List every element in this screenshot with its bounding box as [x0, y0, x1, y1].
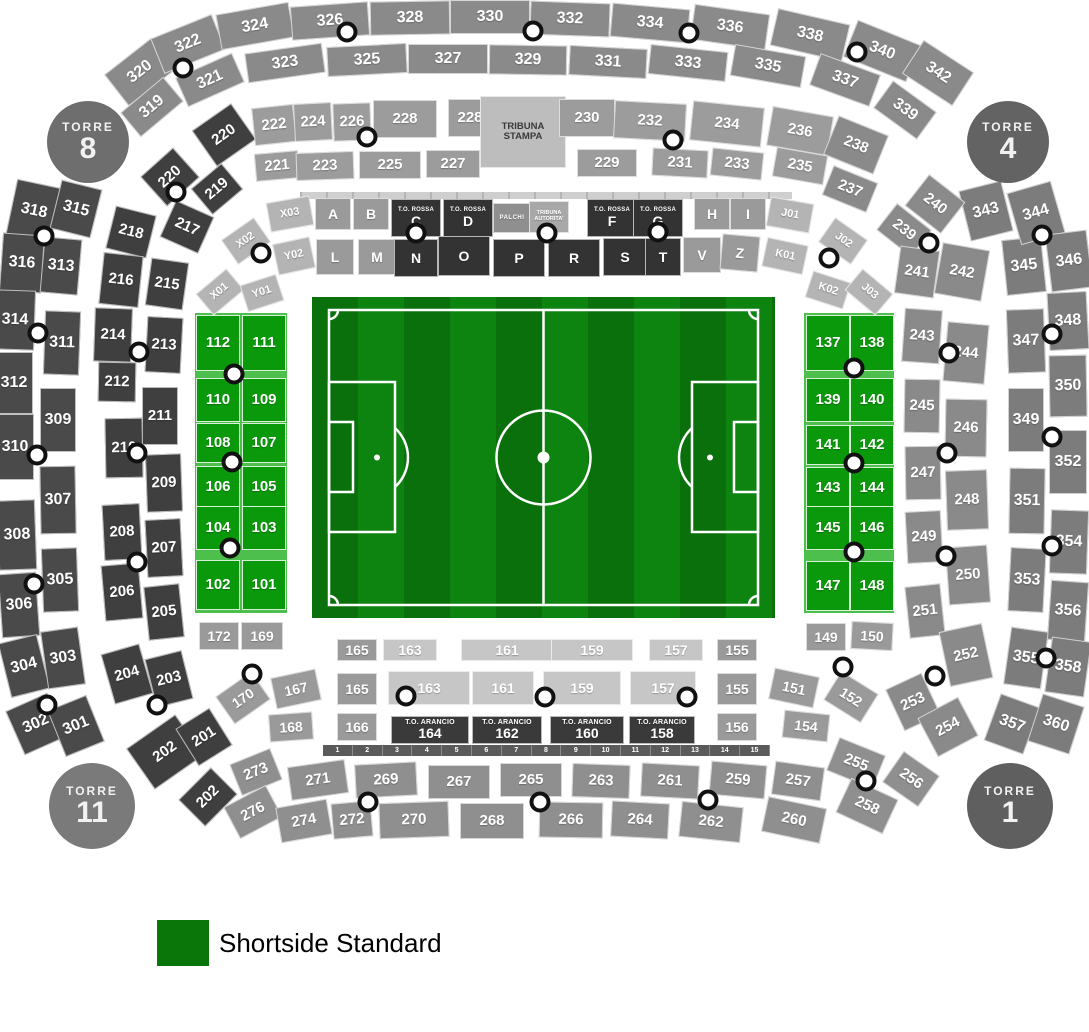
section-label: 214 [100, 327, 126, 344]
section-label: 107 [251, 435, 276, 451]
section-label: 157 [651, 681, 674, 696]
section-label: 205 [151, 603, 178, 621]
section-label: TRIBUNA AUTORITA' [534, 211, 563, 223]
section-label: 163 [417, 681, 440, 696]
section-350: 350 [1048, 355, 1087, 418]
section-label: 238 [841, 133, 870, 157]
section-172: 172 [199, 622, 239, 650]
section-label: 223 [312, 158, 338, 175]
section-label: 265 [518, 772, 543, 788]
section-252: 252 [939, 623, 994, 687]
row-number: 9 [561, 745, 591, 756]
gate-marker [27, 445, 48, 466]
section-label: 340 [866, 38, 897, 64]
section-label: 138 [859, 335, 884, 351]
section-label: 234 [714, 115, 741, 133]
section-label: 345 [1010, 256, 1038, 275]
section-j03: J03 [845, 268, 894, 315]
section-label: X01 [209, 281, 231, 302]
section-305: 305 [41, 547, 79, 612]
section-label: 260 [780, 810, 808, 831]
section-label: 272 [339, 811, 365, 829]
torre-4: TORRE4 [967, 101, 1049, 183]
section-149: 149 [806, 623, 846, 651]
section-160: T.O. ARANCIO160 [550, 716, 624, 744]
section-label: 220 [209, 121, 239, 148]
section-label: 224 [300, 113, 326, 130]
section-label: 239 [889, 216, 918, 244]
section-label: 305 [46, 571, 73, 589]
section-324: 324 [215, 2, 294, 50]
section-233: 233 [710, 147, 765, 180]
section-336: 336 [690, 4, 770, 50]
section-213: 213 [145, 316, 184, 374]
section-label: 245 [909, 398, 934, 414]
section-label: 343 [971, 200, 1001, 223]
row-number: 3 [383, 745, 413, 756]
section-label: 269 [373, 771, 399, 788]
section-label: 103 [251, 520, 276, 536]
gate-marker [530, 792, 551, 813]
gate-marker [37, 695, 58, 716]
gate-marker [129, 342, 150, 363]
section-label: 161 [491, 681, 514, 696]
section-314: 314 [0, 289, 36, 350]
section-j01: J01 [766, 196, 815, 233]
section-label: 243 [909, 327, 935, 344]
section-label: 307 [44, 491, 71, 508]
section-label: 106 [205, 479, 230, 495]
section-label: D [463, 214, 473, 229]
section-label: 228 [392, 111, 417, 127]
section-label: 337 [830, 68, 861, 93]
section-207: 207 [145, 518, 184, 578]
section-155a: 155 [717, 639, 757, 661]
section-label: 329 [514, 51, 541, 68]
section-label: 159 [570, 681, 593, 696]
section-label: R [569, 251, 579, 266]
section-158: T.O. ARANCIO158 [629, 716, 695, 744]
section-351: 351 [1008, 468, 1045, 535]
section-label: I [746, 207, 750, 222]
torre-8: TORRE8 [47, 101, 129, 183]
section-label: 227 [440, 156, 465, 172]
section-label: 236 [786, 121, 813, 141]
gate-marker [220, 538, 241, 559]
section-205: 205 [143, 583, 184, 640]
section-label: 202 [150, 738, 180, 765]
section-y02: Y02 [272, 236, 316, 275]
section-143[interactable]: 143 [806, 467, 850, 509]
section-label: 213 [151, 336, 177, 353]
section-label: 141 [815, 437, 840, 453]
section-label: 216 [108, 271, 135, 289]
section-268: 268 [460, 803, 524, 839]
gate-marker [833, 657, 854, 678]
section-label: 252 [952, 645, 980, 666]
gate-marker [337, 22, 358, 43]
section-label: 217 [172, 215, 201, 240]
section-palchi: PALCHI [493, 203, 531, 233]
section-label: 151 [781, 678, 807, 697]
section-label: 316 [8, 254, 36, 273]
section-label: 215 [154, 274, 181, 293]
gate-marker [523, 21, 544, 42]
section-242: 242 [934, 242, 990, 302]
section-label: 144 [859, 480, 884, 496]
gate-marker [939, 343, 960, 364]
section-243: 243 [901, 308, 943, 365]
legend: Shortside Standard [157, 920, 442, 966]
row-number: 5 [442, 745, 472, 756]
section-260: 260 [761, 796, 827, 844]
section-label: 202 [194, 783, 223, 812]
section-label: 207 [151, 539, 177, 556]
section-139[interactable]: 139 [806, 378, 850, 422]
section-103[interactable]: 103 [242, 506, 286, 550]
section-label: P [514, 251, 523, 266]
section-label: 342 [922, 59, 954, 88]
section-label: 301 [60, 713, 91, 739]
section-label: 339 [889, 95, 920, 124]
section-label: 336 [716, 17, 745, 37]
section-353: 353 [1007, 547, 1046, 613]
section-label: 152 [837, 685, 865, 710]
gate-marker [856, 771, 877, 792]
torre-number: 1 [1002, 798, 1019, 828]
section-label: J01 [780, 208, 800, 223]
section-label: 203 [155, 668, 183, 689]
section-303: 303 [40, 627, 86, 690]
section-label: 140 [859, 392, 884, 408]
section-347: 347 [1006, 308, 1046, 373]
section-333: 333 [648, 44, 729, 82]
section-166: 166 [337, 713, 377, 741]
section-label: 109 [251, 392, 276, 408]
section-label: 344 [1021, 201, 1051, 225]
section-label: 112 [206, 335, 230, 351]
section-323: 323 [244, 43, 325, 84]
section-label: 231 [667, 154, 693, 171]
section-147[interactable]: 147 [806, 561, 850, 611]
section-325: 325 [326, 43, 407, 77]
section-h: H [694, 198, 730, 230]
section-label: 350 [1054, 377, 1081, 394]
gate-marker [396, 686, 417, 707]
section-label: 312 [1, 375, 28, 392]
row-number-strip: 123456789101112131415 [323, 745, 770, 756]
section-label: 349 [1013, 412, 1040, 429]
section-109[interactable]: 109 [242, 378, 286, 422]
row-number: 2 [353, 745, 383, 756]
section-326: 326 [290, 1, 370, 40]
section-label: 170 [229, 685, 257, 710]
section-261: 261 [640, 763, 700, 800]
section-label: O [459, 249, 470, 264]
gate-marker [1032, 225, 1053, 246]
section-label: 248 [954, 492, 980, 509]
section-331: 331 [568, 45, 647, 79]
gate-marker [1042, 324, 1063, 345]
section-144[interactable]: 144 [850, 467, 894, 509]
gate-marker [847, 42, 868, 63]
section-label: 330 [477, 9, 504, 26]
section-219: 219 [191, 163, 243, 215]
section-label: 158 [650, 726, 673, 741]
section-211: 211 [142, 387, 178, 445]
gate-marker [24, 574, 45, 595]
gate-marker [1042, 427, 1063, 448]
section-162: T.O. ARANCIO162 [472, 716, 542, 744]
section-label: 313 [47, 256, 75, 275]
section-334: 334 [610, 3, 691, 44]
section-b: B [353, 198, 389, 230]
section-102[interactable]: 102 [196, 560, 240, 610]
section-label: 149 [814, 630, 837, 645]
section-107[interactable]: 107 [242, 423, 286, 463]
section-label: 228 [457, 110, 482, 126]
gate-marker [127, 552, 148, 573]
section-label: 169 [250, 629, 273, 644]
section-label: 139 [815, 392, 840, 408]
section-308: 308 [0, 499, 37, 570]
section-label: F [608, 214, 617, 229]
section-label: 209 [151, 475, 177, 492]
section-label: 172 [207, 629, 230, 644]
section-label: 147 [815, 578, 840, 594]
torre-number: 11 [76, 798, 108, 828]
stadium-seating-map: 3203223243263283303323343363383403423193… [0, 0, 1089, 1032]
section-label: 165 [345, 682, 368, 697]
section-label: 235 [786, 156, 813, 176]
section-148[interactable]: 148 [850, 561, 894, 611]
section-101[interactable]: 101 [242, 560, 286, 610]
section-343: 343 [958, 180, 1013, 241]
section-label: 328 [396, 9, 423, 26]
gate-marker [358, 792, 379, 813]
section-218: 218 [105, 206, 156, 259]
section-label: 314 [1, 311, 28, 329]
section-328: 328 [370, 0, 451, 35]
section-164: T.O. ARANCIO164 [391, 716, 469, 744]
section-label: 167 [283, 679, 309, 698]
section-214: 214 [93, 307, 133, 362]
section-161b: 161 [472, 671, 534, 705]
section-label: 160 [575, 726, 598, 741]
section-label: 263 [588, 773, 614, 790]
section-label: 274 [290, 811, 317, 831]
section-label: 241 [904, 262, 931, 281]
section-v: V [683, 237, 721, 273]
section-label: 346 [1055, 251, 1084, 271]
section-169: 169 [241, 622, 283, 650]
section-label: 338 [795, 24, 825, 46]
section-label: 219 [202, 175, 231, 203]
gate-marker [224, 364, 245, 385]
section-label: V [697, 248, 706, 263]
section-label: 321 [194, 67, 225, 93]
section-label: 143 [815, 480, 840, 496]
gate-marker [844, 453, 865, 474]
gate-marker [648, 222, 669, 243]
section-label: S [620, 250, 629, 265]
section-label: 230 [574, 110, 599, 126]
section-110[interactable]: 110 [196, 378, 240, 422]
section-tribuna-stampa: TRIBUNA STAMPA [480, 96, 566, 168]
gate-marker [127, 443, 148, 464]
row-number: 1 [323, 745, 353, 756]
section-label: 218 [117, 221, 145, 242]
section-label: 201 [189, 724, 219, 751]
section-label: 334 [636, 13, 664, 32]
section-label: 155 [725, 682, 748, 697]
section-227: 227 [426, 150, 480, 178]
section-label: 331 [594, 53, 622, 71]
gate-marker [222, 452, 243, 473]
gate-marker [535, 687, 556, 708]
section-label: 204 [113, 663, 141, 685]
section-251: 251 [904, 583, 945, 638]
section-label: 356 [1054, 602, 1082, 621]
section-311: 311 [43, 310, 81, 375]
section-label: 233 [724, 155, 751, 173]
section-label: 208 [109, 523, 135, 540]
section-152: 152 [823, 671, 878, 723]
section-159a: 159 [551, 639, 633, 661]
section-label: 104 [205, 520, 230, 536]
section-label: B [366, 207, 376, 222]
section-label: 168 [279, 719, 303, 735]
section-label: 306 [5, 596, 33, 615]
section-label: 111 [252, 335, 275, 351]
gate-marker [406, 223, 427, 244]
section-137[interactable]: 137 [806, 315, 850, 371]
section-label: 253 [898, 690, 927, 715]
section-234: 234 [689, 100, 765, 147]
section-140[interactable]: 140 [850, 378, 894, 422]
section-267: 267 [428, 765, 490, 799]
section-327: 327 [408, 44, 488, 74]
torre-number: 8 [80, 134, 97, 164]
gate-marker [844, 358, 865, 379]
row-number: 7 [502, 745, 532, 756]
section-label: 332 [556, 10, 583, 28]
section-231: 231 [651, 148, 708, 179]
section-label: 229 [594, 155, 619, 171]
section-label: 258 [852, 794, 881, 819]
section-222: 222 [251, 104, 297, 146]
section-t: T [645, 238, 681, 276]
section-label: 206 [109, 583, 135, 601]
section-248: 248 [945, 469, 989, 530]
section-label: 268 [479, 813, 504, 829]
section-label: 166 [345, 720, 368, 735]
center-spot [538, 452, 550, 464]
section-m: M [358, 239, 396, 275]
section-label: 225 [377, 157, 402, 173]
section-245: 245 [904, 379, 941, 434]
section-274: 274 [275, 799, 332, 843]
section-label: 145 [815, 520, 840, 536]
section-label: 102 [205, 577, 230, 593]
section-label: 353 [1013, 571, 1041, 589]
section-151: 151 [768, 668, 820, 709]
section-349: 349 [1008, 388, 1044, 452]
section-label: 164 [418, 726, 441, 741]
section-105[interactable]: 105 [242, 466, 286, 508]
section-209: 209 [145, 453, 183, 512]
section-label: J02 [832, 231, 854, 251]
section-154: 154 [782, 710, 831, 743]
section-label: 240 [920, 190, 949, 218]
row-number: 12 [651, 745, 681, 756]
section-label: M [371, 250, 383, 265]
section-label: Y01 [251, 284, 273, 301]
section-label: 249 [911, 528, 937, 545]
torre-11: TORRE11 [49, 763, 135, 849]
section-label: 303 [49, 648, 78, 668]
section-label: K01 [774, 248, 796, 263]
section-label: 304 [9, 655, 39, 678]
penalty-spot-right [707, 455, 713, 461]
section-label: 246 [953, 420, 978, 436]
section-label: 250 [955, 566, 981, 583]
row-number: 8 [532, 745, 562, 756]
section-360: 360 [1027, 693, 1084, 754]
section-label: 101 [251, 577, 276, 593]
section-label: 262 [698, 813, 725, 831]
section-label: 232 [637, 112, 663, 129]
section-x03: X03 [266, 195, 315, 232]
section-329: 329 [489, 44, 568, 75]
section-157a: 157 [649, 639, 703, 661]
section-330: 330 [450, 0, 530, 34]
section-label: X03 [279, 207, 300, 222]
section-212: 212 [98, 362, 137, 403]
section-label: 222 [261, 116, 288, 134]
row-number: 13 [681, 745, 711, 756]
section-309: 309 [40, 388, 76, 452]
legend-swatch-shortside-standard [157, 920, 209, 966]
section-label: 276 [238, 799, 267, 825]
section-167: 167 [270, 669, 322, 710]
section-label: 351 [1013, 492, 1040, 509]
section-270: 270 [378, 801, 449, 839]
section-230: 230 [559, 99, 615, 137]
section-label: 335 [753, 55, 782, 76]
section-l: L [316, 239, 354, 275]
section-163a: 163 [383, 639, 437, 661]
section-x01: X01 [196, 268, 245, 315]
section-145[interactable]: 145 [806, 506, 850, 550]
section-label: K02 [817, 281, 840, 298]
section-k01: K01 [761, 237, 808, 275]
section-label: 270 [401, 812, 427, 829]
section-label: A [328, 207, 338, 222]
section-p: P [493, 239, 545, 277]
section-label: 319 [136, 92, 167, 122]
gate-marker [679, 23, 700, 44]
section-label: 308 [3, 526, 30, 544]
section-220a: 220 [192, 103, 257, 167]
section-150: 150 [850, 621, 893, 651]
section-111[interactable]: 111 [242, 315, 286, 371]
section-263: 263 [571, 763, 630, 799]
gate-marker [1036, 648, 1057, 669]
section-label: 315 [61, 198, 91, 221]
football-pitch [312, 297, 775, 618]
row-number: 10 [591, 745, 621, 756]
